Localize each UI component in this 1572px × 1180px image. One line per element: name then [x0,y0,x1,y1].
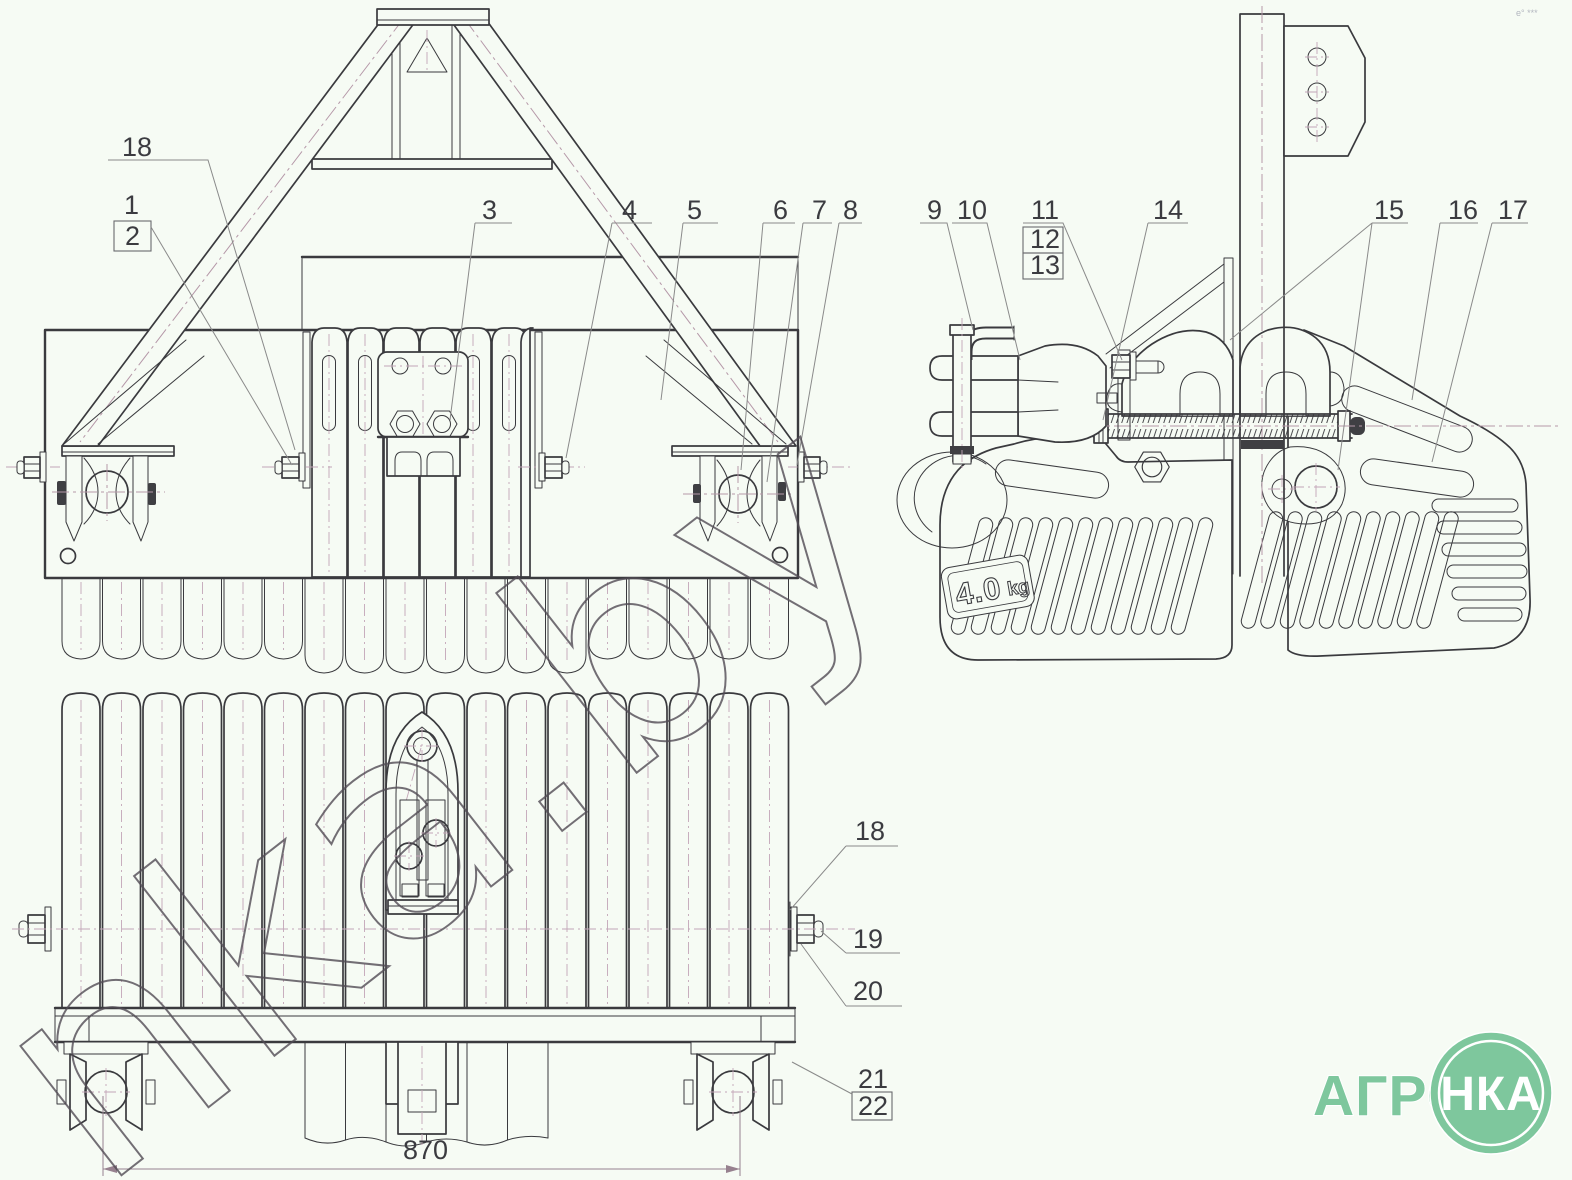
callout-2: 2 [125,221,140,251]
callout-6: 6 [773,195,788,225]
callout-11: 11 [1031,195,1059,225]
center-bracket [378,352,468,476]
agronka-logo: АГРО НКА [1313,1032,1552,1154]
callout-3: 3 [482,195,497,225]
hitch-ball-left [6,446,174,541]
frame-hole-left [61,549,76,564]
callout-14: 14 [1153,195,1183,225]
top-hitch-bracket [1284,26,1365,156]
front-weight: 4.0 kg [897,436,1232,660]
side-view: 4.0 kg [897,6,1560,660]
technical-drawing: 870 4.0 kg [0,0,1572,1180]
callout-10: 10 [957,195,987,225]
callout-13: 13 [1030,250,1060,280]
callout-7: 7 [812,195,827,225]
roller-right [684,1042,782,1130]
callout-20: 20 [853,976,883,1006]
callout-9: 9 [927,195,942,225]
dimension-value: 870 [403,1135,448,1165]
callout-1: 1 [124,190,139,220]
callout-4: 4 [622,195,637,225]
callout-18b: 18 [855,816,885,846]
callout-17: 17 [1498,195,1528,225]
callout-5: 5 [687,195,702,225]
corner-marks: e° *** [1516,8,1538,18]
callout-8: 8 [843,195,858,225]
callout-22: 22 [858,1091,888,1121]
callout-15: 15 [1374,195,1404,225]
callout-18: 18 [122,132,152,162]
weight-unit: kg [1006,576,1031,601]
callout-16: 16 [1448,195,1478,225]
callout-21: 21 [858,1064,888,1094]
logo-text-circle: НКА [1440,1068,1542,1121]
callout-19: 19 [853,924,883,954]
